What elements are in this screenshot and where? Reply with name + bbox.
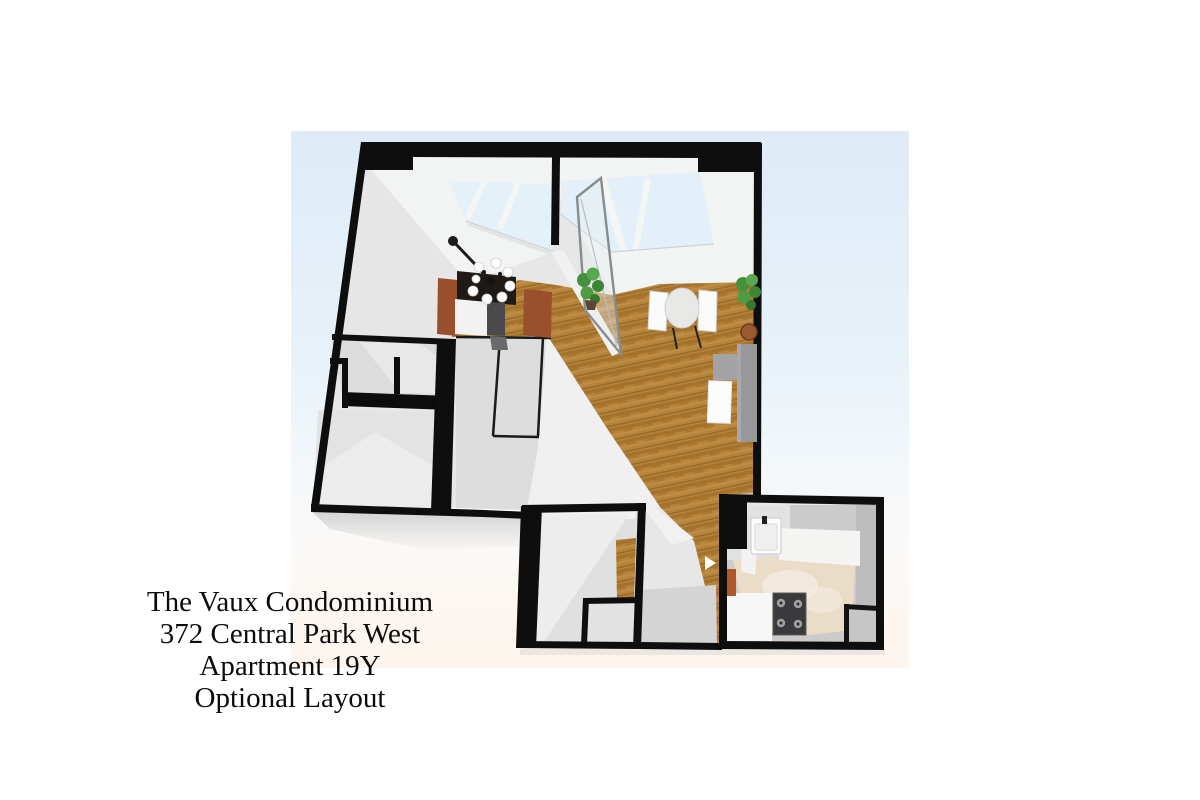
svg-text:The Vaux Condominium: The Vaux Condominium <box>147 586 434 618</box>
svg-text:Apartment 19Y: Apartment 19Y <box>199 650 380 682</box>
svg-text:Optional Layout: Optional Layout <box>195 682 386 714</box>
svg-text:372 Central Park West: 372 Central Park West <box>160 618 421 650</box>
